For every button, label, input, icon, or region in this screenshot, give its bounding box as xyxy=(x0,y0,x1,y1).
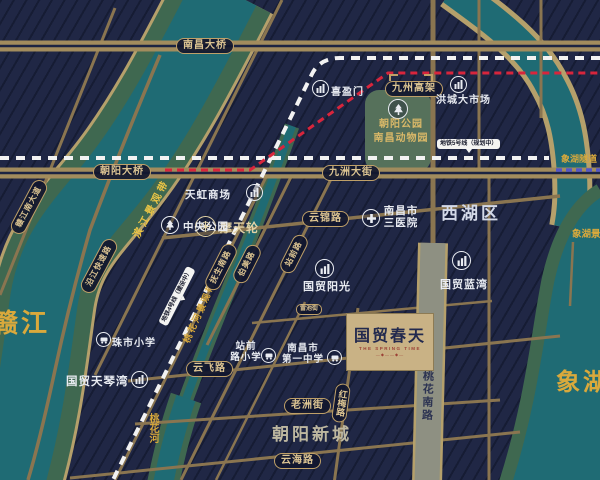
poi-central-park: 中央公园 xyxy=(183,219,229,234)
project-name: 国贸春天 xyxy=(354,328,426,346)
road-label-yunhai: 云海路 xyxy=(274,453,321,469)
viaduct-bracket-right xyxy=(424,74,433,81)
road-label-chaoyang-bridge: 朝阳大桥 xyxy=(93,164,151,180)
poi-chaoyang-park: 朝阳公园 南昌动物园 xyxy=(372,118,430,146)
xianghu-label: 象湖 xyxy=(556,362,600,397)
residence-icon xyxy=(131,371,148,388)
poi-hongcheng-market: 洪城大市场 xyxy=(436,91,491,106)
pointer-down-icon xyxy=(466,149,472,153)
project-logo-guomao-spring: 国贸春天 THE SPRING TIME —◆——◆— xyxy=(346,313,434,371)
road-label-leichi: 雷池街 xyxy=(296,304,322,315)
road-label-nanchang-bridge: 南昌大桥 xyxy=(176,38,234,54)
road-label-jiuzhou-street: 九洲大街 xyxy=(322,165,380,181)
poi-guomao-sunshine: 国贸阳光 xyxy=(303,278,351,294)
location-map: 赣江 象湖 西湖区 朝阳新城 象湖景观带 象湖隧道 滨江景观带 桃花河景观带 桃… xyxy=(0,0,600,480)
poi-no1-middle-school: 南昌市 第一中学 xyxy=(281,343,325,365)
road-label-laozhou: 老洲街 xyxy=(284,398,331,414)
hospital-cross-icon xyxy=(362,209,380,227)
xihu-district-label: 西湖区 xyxy=(441,199,501,224)
chaoyang-newtown-label: 朝阳新城 xyxy=(272,420,352,445)
taohua-river-label: 桃花河 xyxy=(146,413,158,443)
fuhe-river xyxy=(452,0,572,228)
logo-deco-line: —◆——◆— xyxy=(376,352,404,357)
road-label-jiuzhou-viaduct: 九州高架 xyxy=(385,81,443,97)
school-icon xyxy=(327,350,342,365)
poi-zhushi-school: 珠市小学 xyxy=(112,334,156,349)
school-icon xyxy=(96,332,111,347)
mall-icon xyxy=(246,184,263,201)
school-icon xyxy=(261,348,276,363)
xianghu-tunnel-label: 象湖隧道 xyxy=(561,152,597,165)
poi-third-hospital: 南昌市 三医院 xyxy=(381,205,421,229)
poi-zhanqian-school: 站前 路小学 xyxy=(229,341,263,363)
road-label-yunfei: 云飞路 xyxy=(186,361,233,377)
metro-line5-label: 地铁5号线（规划中） xyxy=(437,139,500,149)
poi-tianhong-mall: 天虹商场 xyxy=(185,187,231,202)
residence-icon xyxy=(315,259,334,278)
viaduct-bracket-left xyxy=(389,74,398,81)
xianghu-belt-label: 象湖景观带 xyxy=(572,226,600,240)
building-icon xyxy=(312,80,329,97)
poi-guomao-bluebay: 国贸蓝湾 xyxy=(440,276,488,292)
residence-icon xyxy=(452,251,471,270)
park-tree-icon xyxy=(388,99,408,119)
poi-guomao-tianqinbay: 国贸天琴湾 xyxy=(66,373,129,389)
road-label-taohua-south: 桃花南路 xyxy=(419,370,433,422)
road-label-yunjin: 云锦路 xyxy=(302,211,349,227)
tree-icon xyxy=(161,216,179,234)
poi-xiyingmen: 喜盈门 xyxy=(331,83,364,98)
ganjiang-label: 赣江 xyxy=(0,303,50,340)
